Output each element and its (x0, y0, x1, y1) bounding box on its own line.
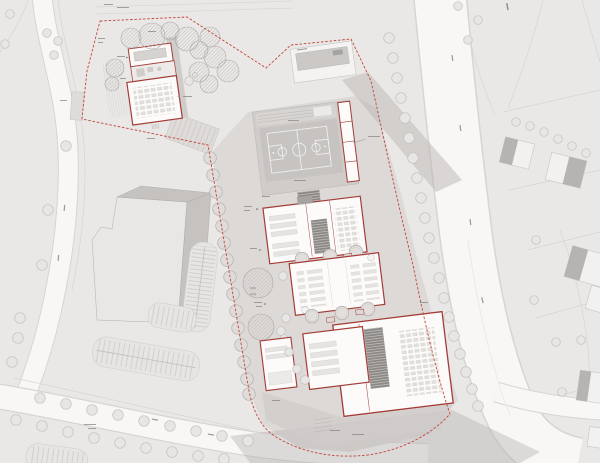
tree-icon (11, 415, 22, 426)
tree-icon (408, 153, 419, 164)
hatched-tree-icon (243, 268, 273, 298)
tree-icon (89, 433, 100, 444)
tree-icon (420, 213, 431, 224)
micro-label (330, 430, 340, 431)
street-name-label (88, 428, 96, 429)
tree-icon (424, 233, 435, 244)
micro-label (183, 96, 192, 97)
tree-icon (434, 273, 445, 284)
annex-building (260, 337, 297, 390)
tree-icon (554, 135, 563, 144)
bench (250, 293, 256, 295)
micro-label (117, 7, 129, 8)
tree-icon (512, 118, 521, 127)
tree-icon (540, 128, 549, 137)
tree-icon (63, 427, 74, 438)
tree-icon (115, 438, 126, 449)
campus-tree-icon (305, 309, 319, 323)
tree-icon (37, 260, 48, 271)
micro-label (60, 100, 67, 101)
tree-icon (167, 447, 178, 458)
tree-icon (388, 53, 399, 64)
tree-icon (54, 37, 63, 46)
micro-label (272, 400, 280, 401)
tree-icon (455, 349, 466, 360)
micro-label (244, 210, 250, 211)
micro-label (262, 196, 270, 197)
sandbox (193, 73, 198, 78)
tree-icon (13, 333, 24, 344)
hatched-tree-icon (248, 314, 274, 340)
tree-icon (87, 405, 98, 416)
tree-icon (193, 451, 204, 462)
hatched-tree-icon (200, 75, 218, 93)
planter (326, 317, 335, 323)
tree-icon (219, 454, 230, 463)
tree-icon (61, 141, 72, 152)
micro-label (352, 434, 364, 435)
tree-icon (1, 40, 10, 49)
hatched-tree-icon (105, 77, 119, 91)
interior-room (268, 370, 292, 385)
planter (356, 309, 365, 315)
hatched-tree-icon (139, 23, 165, 49)
tree-icon (404, 133, 415, 144)
micro-label (147, 138, 155, 139)
tree-icon (113, 410, 124, 421)
tree-icon (467, 384, 478, 395)
house (576, 370, 600, 403)
tree-icon (439, 293, 450, 304)
tree-icon (558, 388, 567, 397)
tree-icon (241, 373, 254, 386)
micro-label (256, 306, 262, 307)
tree-icon (301, 376, 310, 385)
hatched-tree-icon (200, 27, 220, 47)
campus-tree-icon (335, 306, 349, 320)
classroom-building-c-wing (303, 327, 369, 390)
tree-icon (6, 10, 15, 19)
tree-icon (449, 331, 460, 342)
micro-label (148, 31, 156, 32)
micro-label (288, 120, 299, 121)
tree-icon (392, 73, 403, 84)
table-rows (350, 261, 380, 302)
micro-label (294, 180, 306, 181)
tree-icon (165, 421, 176, 432)
tree-icon (277, 327, 286, 336)
tree-icon (526, 122, 535, 131)
tree-icon (429, 253, 440, 264)
tree-icon (243, 436, 254, 447)
hatched-tree-icon (106, 59, 124, 77)
street-name-label (84, 424, 96, 425)
gym-building (252, 100, 360, 195)
tree-icon (217, 431, 228, 442)
tree-icon (577, 336, 586, 345)
tree-icon (473, 401, 484, 412)
tree-icon (285, 348, 294, 357)
micro-label (254, 302, 262, 303)
tree-icon (139, 416, 150, 427)
site-plan-page (0, 0, 600, 463)
tree-icon (464, 36, 473, 45)
interior-room (136, 68, 145, 77)
micro-label (368, 136, 380, 137)
tree-icon (61, 399, 72, 410)
micro-label (98, 38, 105, 39)
bench (250, 287, 256, 289)
tree-icon (43, 29, 52, 38)
tree-icon (412, 173, 423, 184)
tree-icon (461, 367, 472, 378)
tree-icon (416, 193, 427, 204)
tree-icon (582, 149, 591, 158)
tree-icon (50, 51, 59, 60)
tree-icon (384, 33, 395, 44)
desk-grid (133, 82, 176, 118)
tree-icon (454, 2, 463, 11)
interior-room (147, 67, 154, 73)
table-rows (296, 268, 326, 309)
tree-icon (400, 113, 411, 124)
tree-icon (37, 421, 48, 432)
tree-icon (396, 93, 407, 104)
micro-label (420, 302, 428, 303)
tree-icon (279, 272, 288, 281)
tree-icon (141, 443, 152, 454)
tree-icon (43, 205, 54, 216)
tree-icon (532, 236, 541, 245)
micro-label (98, 42, 103, 43)
tree-icon (7, 357, 18, 368)
site-plan-canvas (0, 0, 600, 463)
tree-icon (191, 426, 202, 437)
micro-label (250, 248, 257, 249)
hatched-tree-icon (217, 60, 239, 82)
tree-icon (293, 365, 302, 374)
tree-icon (282, 314, 291, 323)
tree-icon (35, 393, 46, 404)
micro-label (117, 56, 125, 57)
micro-label (104, 4, 113, 5)
tree-icon (568, 142, 577, 151)
tree-icon (185, 77, 194, 86)
tree-icon (474, 16, 483, 25)
tree-icon (530, 296, 539, 305)
tree-icon (15, 313, 26, 324)
hatched-tree-icon (121, 28, 141, 48)
bus-stop (70, 92, 84, 121)
micro-label (244, 206, 252, 207)
micro-label (120, 78, 126, 79)
tree-icon (552, 338, 561, 347)
tree-icon (444, 312, 455, 323)
